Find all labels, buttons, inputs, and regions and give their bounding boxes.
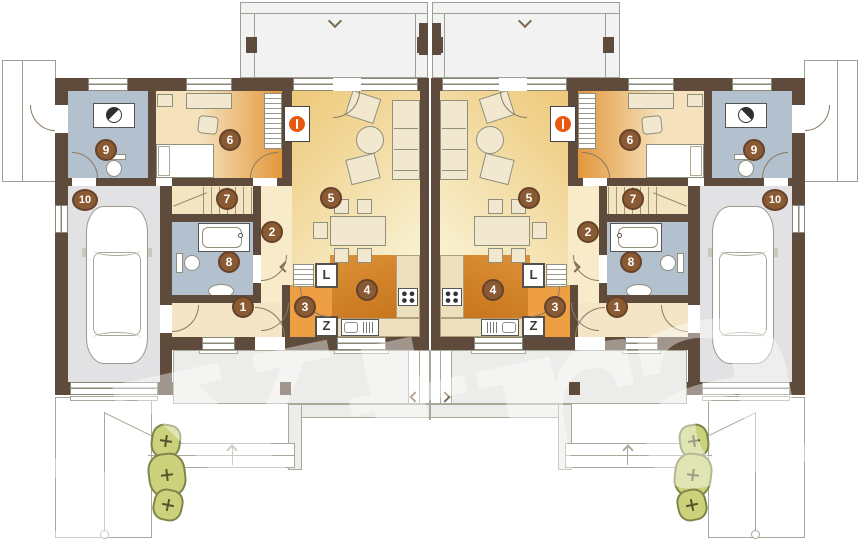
fireplace-icon-bar	[562, 119, 564, 129]
kitchen-cabinet-icon	[546, 264, 567, 287]
room-badge-2: 2	[261, 221, 283, 243]
window-entry	[202, 337, 235, 350]
toilet-bowl-icon	[738, 160, 754, 177]
side-porch-line	[837, 60, 838, 182]
dining-chair	[334, 248, 349, 263]
car-windshield-line	[93, 244, 141, 256]
driveway-line	[104, 412, 105, 534]
toilet-tank	[176, 253, 183, 273]
window-utility	[732, 78, 772, 91]
room-badge-7: 7	[622, 188, 644, 210]
dining-chair	[357, 248, 372, 263]
cooktop-icon	[442, 288, 462, 306]
dining-table	[474, 216, 530, 246]
window-sill	[334, 350, 389, 354]
cooktop-icon	[398, 288, 418, 306]
garage-door-leaf	[70, 396, 158, 401]
toilet-bowl-icon	[660, 255, 676, 271]
window-sill	[471, 350, 526, 354]
room-badge-4: 4	[356, 279, 378, 301]
room-badge-10: 10	[762, 189, 788, 211]
bed-pillow	[690, 146, 702, 176]
fridge-label: L	[315, 263, 338, 288]
wardrobe-icon	[578, 93, 596, 149]
sink-bowl-icon	[344, 322, 358, 333]
window-bedroom	[628, 78, 674, 91]
unit-right: L Z	[430, 0, 860, 541]
utility-door-opening	[764, 178, 788, 186]
bathtub-inner	[202, 227, 242, 248]
room-badge-8: 8	[620, 251, 642, 273]
garage-wall-right	[160, 186, 172, 395]
terrace-door-opening	[499, 78, 527, 91]
garage-door-leaf	[702, 396, 790, 401]
front-door-opening	[255, 337, 285, 350]
dining-chair	[511, 248, 526, 263]
porch-pillar	[246, 37, 257, 53]
car-rear-line	[719, 332, 767, 344]
fridge-label: L	[522, 263, 545, 288]
room-badge-5: 5	[320, 187, 342, 209]
toilet-bowl-icon	[106, 160, 122, 177]
room-badge-2: 2	[577, 221, 599, 243]
sofa-seat-lines	[442, 108, 466, 171]
garage-door-opening	[160, 305, 172, 333]
chair	[641, 115, 663, 135]
wall-stairs-bath	[172, 214, 253, 222]
coffee-table	[356, 126, 384, 154]
sink-bowl-icon	[502, 322, 516, 333]
washing-machine-icon	[106, 107, 122, 123]
garage-wall-right	[688, 186, 700, 395]
room-badge-8: 8	[218, 251, 240, 273]
nightstand	[687, 94, 703, 107]
nightstand	[157, 94, 173, 107]
wall-utility-bedroom	[148, 91, 156, 178]
room-badge-7: 7	[216, 188, 238, 210]
side-porch-line	[22, 60, 23, 182]
kitchen-cabinet-icon	[293, 264, 314, 287]
side-door-opening	[792, 105, 805, 133]
car-mirror	[82, 248, 86, 257]
room-badge-4: 4	[482, 279, 504, 301]
car-cabin	[93, 252, 141, 336]
porch-side-line	[415, 13, 416, 78]
party-wall	[430, 78, 440, 350]
bedroom-door-opening	[253, 178, 277, 186]
dining-chair	[488, 199, 503, 214]
car-rear-line	[93, 332, 141, 344]
window-kitchen	[474, 337, 523, 350]
driveway-line	[755, 412, 756, 534]
porch-party-wall-stub	[432, 23, 441, 55]
room-badge-9: 9	[743, 139, 765, 161]
window-sill	[199, 350, 238, 354]
porch-pillar	[603, 37, 614, 53]
terrace-slab	[430, 350, 687, 404]
terrace-pier	[280, 382, 291, 395]
dishwasher-label: Z	[522, 316, 545, 337]
kitchen-counter-right	[396, 255, 420, 318]
walkway-band	[288, 404, 430, 418]
plan-canvas: L Z	[0, 0, 860, 541]
window-bedroom	[186, 78, 232, 91]
bathtub-inner	[618, 227, 658, 248]
dining-table	[330, 216, 386, 246]
car-mirror	[708, 248, 712, 257]
room-badge-6: 6	[219, 129, 241, 151]
terrace-pier	[569, 382, 580, 395]
wardrobe-icon	[264, 93, 282, 149]
wall-bath-hall	[599, 186, 607, 303]
walkway-band	[430, 404, 572, 418]
garage-door-opening	[688, 305, 700, 333]
dining-chair	[532, 222, 547, 239]
terrace-center-line	[429, 350, 431, 420]
bedroom-door-opening	[583, 178, 607, 186]
dining-chair	[313, 222, 328, 239]
kitchen-counter-right	[440, 255, 464, 318]
toilet-bowl-icon	[184, 255, 200, 271]
gate-post-icon	[751, 530, 760, 539]
dining-chair	[357, 199, 372, 214]
porch-edge-line	[432, 13, 620, 14]
desk	[628, 93, 674, 109]
bed-pillow	[158, 146, 170, 176]
room-badge-1: 1	[232, 296, 254, 318]
room-badge-3: 3	[294, 296, 316, 318]
fireplace-icon-bar	[296, 119, 298, 129]
sink-drainer-icon	[361, 322, 375, 333]
coffee-table	[476, 126, 504, 154]
car-mirror	[774, 248, 778, 257]
room-badge-6: 6	[619, 129, 641, 151]
room-badge-10: 10	[72, 189, 98, 211]
chair	[197, 115, 219, 135]
room-badge-1: 1	[606, 296, 628, 318]
bath-door-opening	[253, 255, 261, 283]
desk	[186, 93, 232, 109]
window-garage-side	[792, 205, 805, 233]
car-mirror	[148, 248, 152, 257]
side-door-opening	[55, 105, 68, 133]
sink-drainer-icon	[485, 322, 499, 333]
gate-post-icon	[100, 530, 109, 539]
dishwasher-label: Z	[315, 316, 338, 337]
bathtub-drain-icon	[617, 233, 622, 238]
exterior-wall-bottom	[430, 337, 700, 350]
window-sill	[622, 350, 661, 354]
window-utility	[88, 78, 128, 91]
porch-party-wall-stub	[419, 23, 428, 55]
terrace-door-opening	[333, 78, 361, 91]
car-cabin	[719, 252, 767, 336]
window-entry	[625, 337, 658, 350]
floor-plan: L Z	[0, 0, 860, 541]
wall-stairs-bath	[607, 214, 688, 222]
porch-side-line	[444, 13, 445, 78]
party-wall-seam	[429, 78, 431, 350]
bathtub-drain-icon	[238, 233, 243, 238]
car-windshield-line	[719, 244, 767, 256]
bath-door-opening	[599, 255, 607, 283]
sofa-seat-lines	[394, 108, 418, 171]
unit-left: L Z	[0, 0, 430, 541]
washing-machine-icon	[738, 107, 754, 123]
garage-door	[70, 382, 158, 395]
room-badge-9: 9	[95, 139, 117, 161]
room-badge-5: 5	[518, 187, 540, 209]
utility-door-opening	[72, 178, 96, 186]
toilet-tank	[677, 253, 684, 273]
driveway	[708, 397, 805, 538]
front-door-opening	[575, 337, 605, 350]
window-kitchen	[337, 337, 386, 350]
wall-bath-hall	[253, 186, 261, 303]
dining-chair	[488, 248, 503, 263]
exterior-wall-bottom	[160, 337, 430, 350]
window-garage-side	[55, 205, 68, 233]
garage-door	[702, 382, 790, 395]
terrace-slab	[173, 350, 430, 404]
wall-utility-bedroom	[704, 91, 712, 178]
room-badge-3: 3	[544, 296, 566, 318]
